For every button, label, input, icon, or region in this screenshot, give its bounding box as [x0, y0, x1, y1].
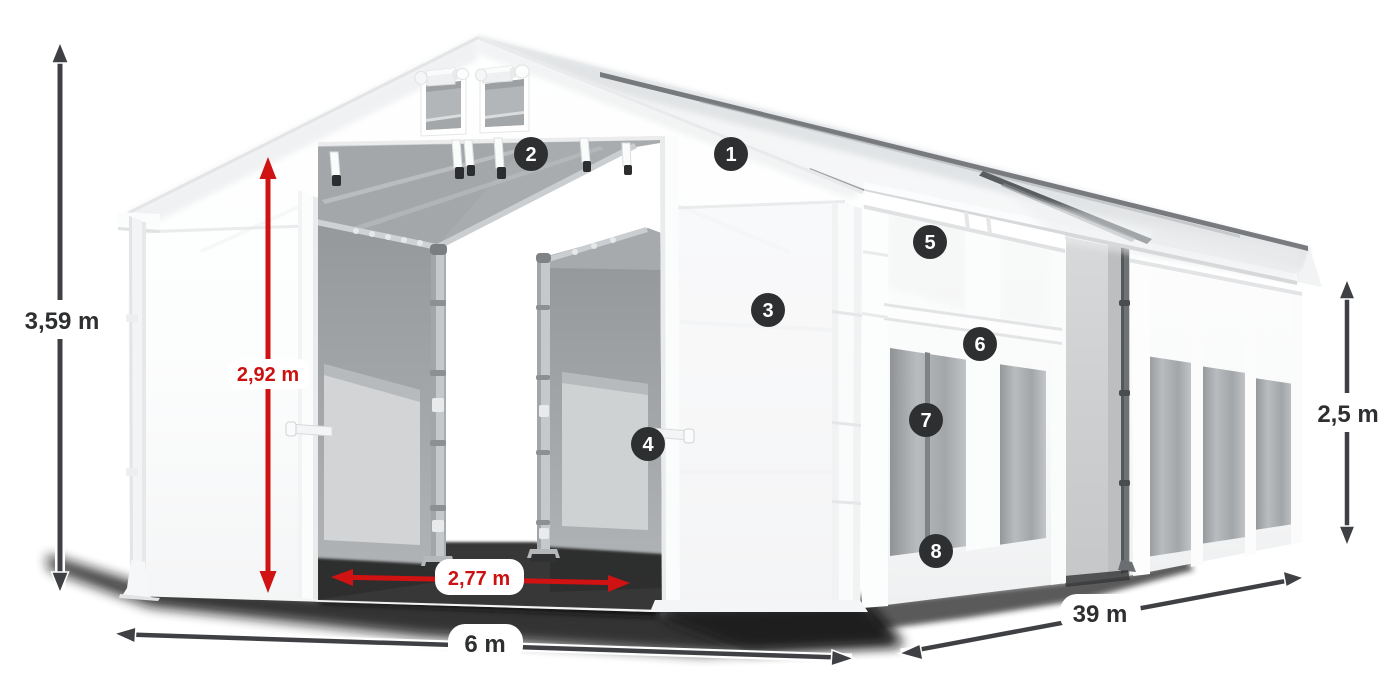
svg-text:2: 2	[525, 144, 536, 166]
svg-text:5: 5	[924, 232, 935, 254]
svg-text:2,77 m: 2,77 m	[448, 568, 510, 590]
svg-text:4: 4	[642, 434, 654, 456]
svg-text:6: 6	[974, 334, 985, 356]
svg-text:6 m: 6 m	[464, 631, 505, 658]
svg-text:7: 7	[920, 410, 931, 432]
svg-text:8: 8	[930, 541, 941, 563]
svg-text:1: 1	[725, 144, 736, 166]
svg-text:39 m: 39 m	[1073, 601, 1128, 628]
svg-text:3: 3	[762, 300, 773, 322]
svg-text:2,5 m: 2,5 m	[1317, 401, 1378, 428]
svg-text:2,92 m: 2,92 m	[237, 364, 299, 386]
svg-text:3,59 m: 3,59 m	[25, 308, 100, 335]
